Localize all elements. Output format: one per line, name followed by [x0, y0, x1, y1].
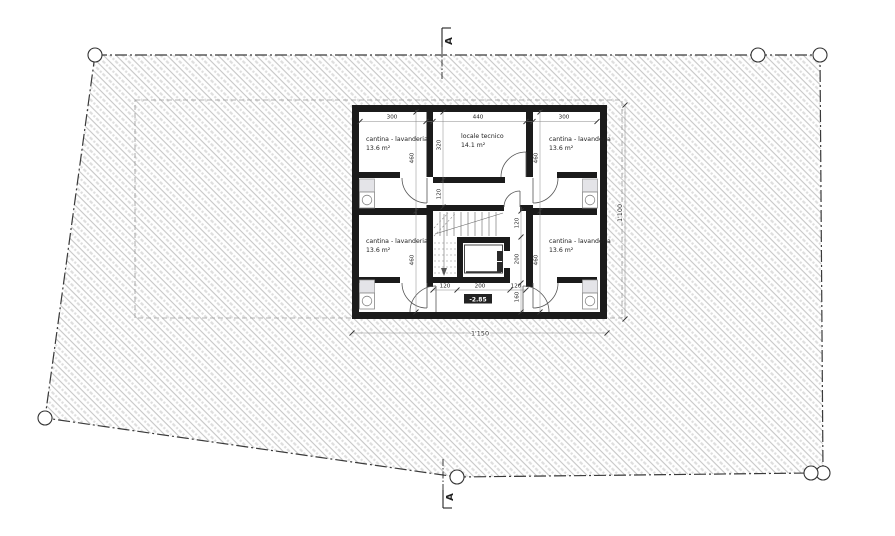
room-area: 13.6 m²: [549, 247, 574, 254]
dim-value: 300: [387, 115, 398, 121]
room-area: 13.6 m²: [366, 247, 391, 254]
washing-machine-icon: [583, 280, 598, 309]
room-label: cantina - lavanderia: [366, 136, 428, 143]
elevator-door-leaf: [497, 251, 503, 261]
dim-value: 120: [511, 284, 522, 290]
dim-value: 460: [534, 254, 540, 265]
boundary-point-icon: [38, 411, 52, 425]
boundary-point-icon: [751, 48, 765, 62]
room-label: cantina - lavanderia: [366, 238, 428, 245]
room-area: 13.6 m²: [549, 145, 574, 152]
level-badge: -2.85: [464, 294, 492, 304]
room-area: 14.1 m²: [461, 142, 486, 149]
room-label: cantina - lavanderia: [549, 238, 611, 245]
washing-machine-icon: [360, 280, 375, 309]
dim-value: 120: [437, 188, 443, 199]
washing-machine-icon: [583, 179, 598, 208]
dim-value: 460: [410, 254, 416, 265]
elevator-door-leaf: [497, 262, 503, 272]
dim-value: 300: [559, 115, 570, 121]
room-label: cantina - lavanderia: [549, 136, 611, 143]
level-value: -2.85: [469, 297, 486, 304]
dim-value: 120: [515, 217, 521, 228]
dim-value: 200: [515, 253, 521, 264]
room-label: locale tecnico: [461, 133, 504, 140]
overall-depth-dim: 1'100: [616, 204, 624, 222]
dim-value: 440: [473, 115, 484, 121]
dim-value: 460: [534, 152, 540, 163]
section-label-top: A: [444, 37, 455, 45]
dim-value: 460: [410, 152, 416, 163]
dim-value: 120: [440, 284, 451, 290]
boundary-point-icon: [804, 466, 818, 480]
boundary-point-icon: [813, 48, 827, 62]
floor-plan-page: A A: [0, 0, 895, 536]
room-area: 13.6 m²: [366, 145, 391, 152]
overall-width-dim: 1'150: [471, 330, 489, 338]
washing-machine-icon: [360, 179, 375, 208]
dim-value: 200: [475, 284, 486, 290]
dim-value: 320: [437, 139, 443, 150]
boundary-point-icon: [88, 48, 102, 62]
section-label-bottom: A: [445, 493, 456, 501]
boundary-point-icon: [450, 470, 464, 484]
dim-value: 160: [515, 291, 521, 302]
floor-plan-canvas: A A: [0, 0, 895, 536]
